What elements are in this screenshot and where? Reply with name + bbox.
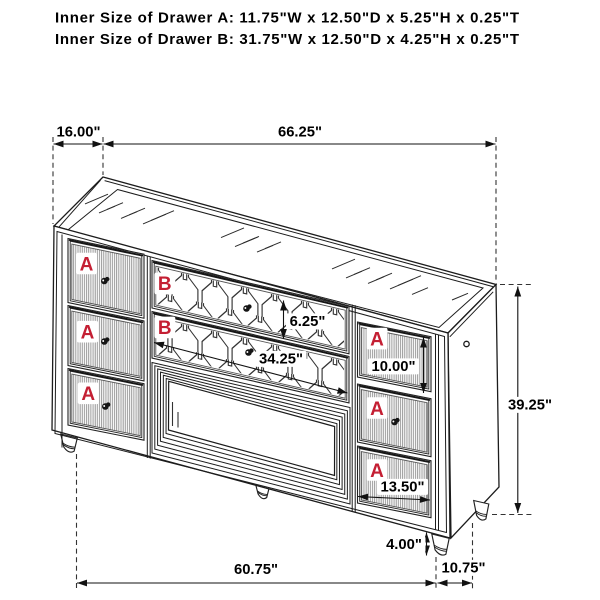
svg-text:B: B [158,318,172,339]
svg-text:6.25": 6.25" [290,314,326,330]
svg-text:60.75": 60.75" [234,562,278,578]
svg-text:A: A [81,384,95,405]
svg-text:A: A [81,323,95,344]
svg-text:10.00": 10.00" [371,359,415,375]
svg-text:A: A [370,399,384,420]
svg-text:A: A [80,254,94,275]
svg-text:4.00": 4.00" [386,537,422,553]
svg-text:39.25": 39.25" [508,398,552,414]
svg-text:Inner Size of Drawer A: 11.75": Inner Size of Drawer A: 11.75"W x 12.50"… [55,9,519,26]
svg-text:16.00": 16.00" [56,125,100,141]
svg-text:13.50": 13.50" [380,480,424,496]
svg-text:34.25": 34.25" [259,352,303,368]
svg-text:A: A [370,329,384,350]
svg-text:66.25": 66.25" [278,125,322,141]
svg-text:10.75": 10.75" [441,561,485,577]
svg-text:B: B [158,274,172,295]
svg-text:Inner Size of Drawer B: 31.75": Inner Size of Drawer B: 31.75"W x 12.50"… [55,31,519,48]
